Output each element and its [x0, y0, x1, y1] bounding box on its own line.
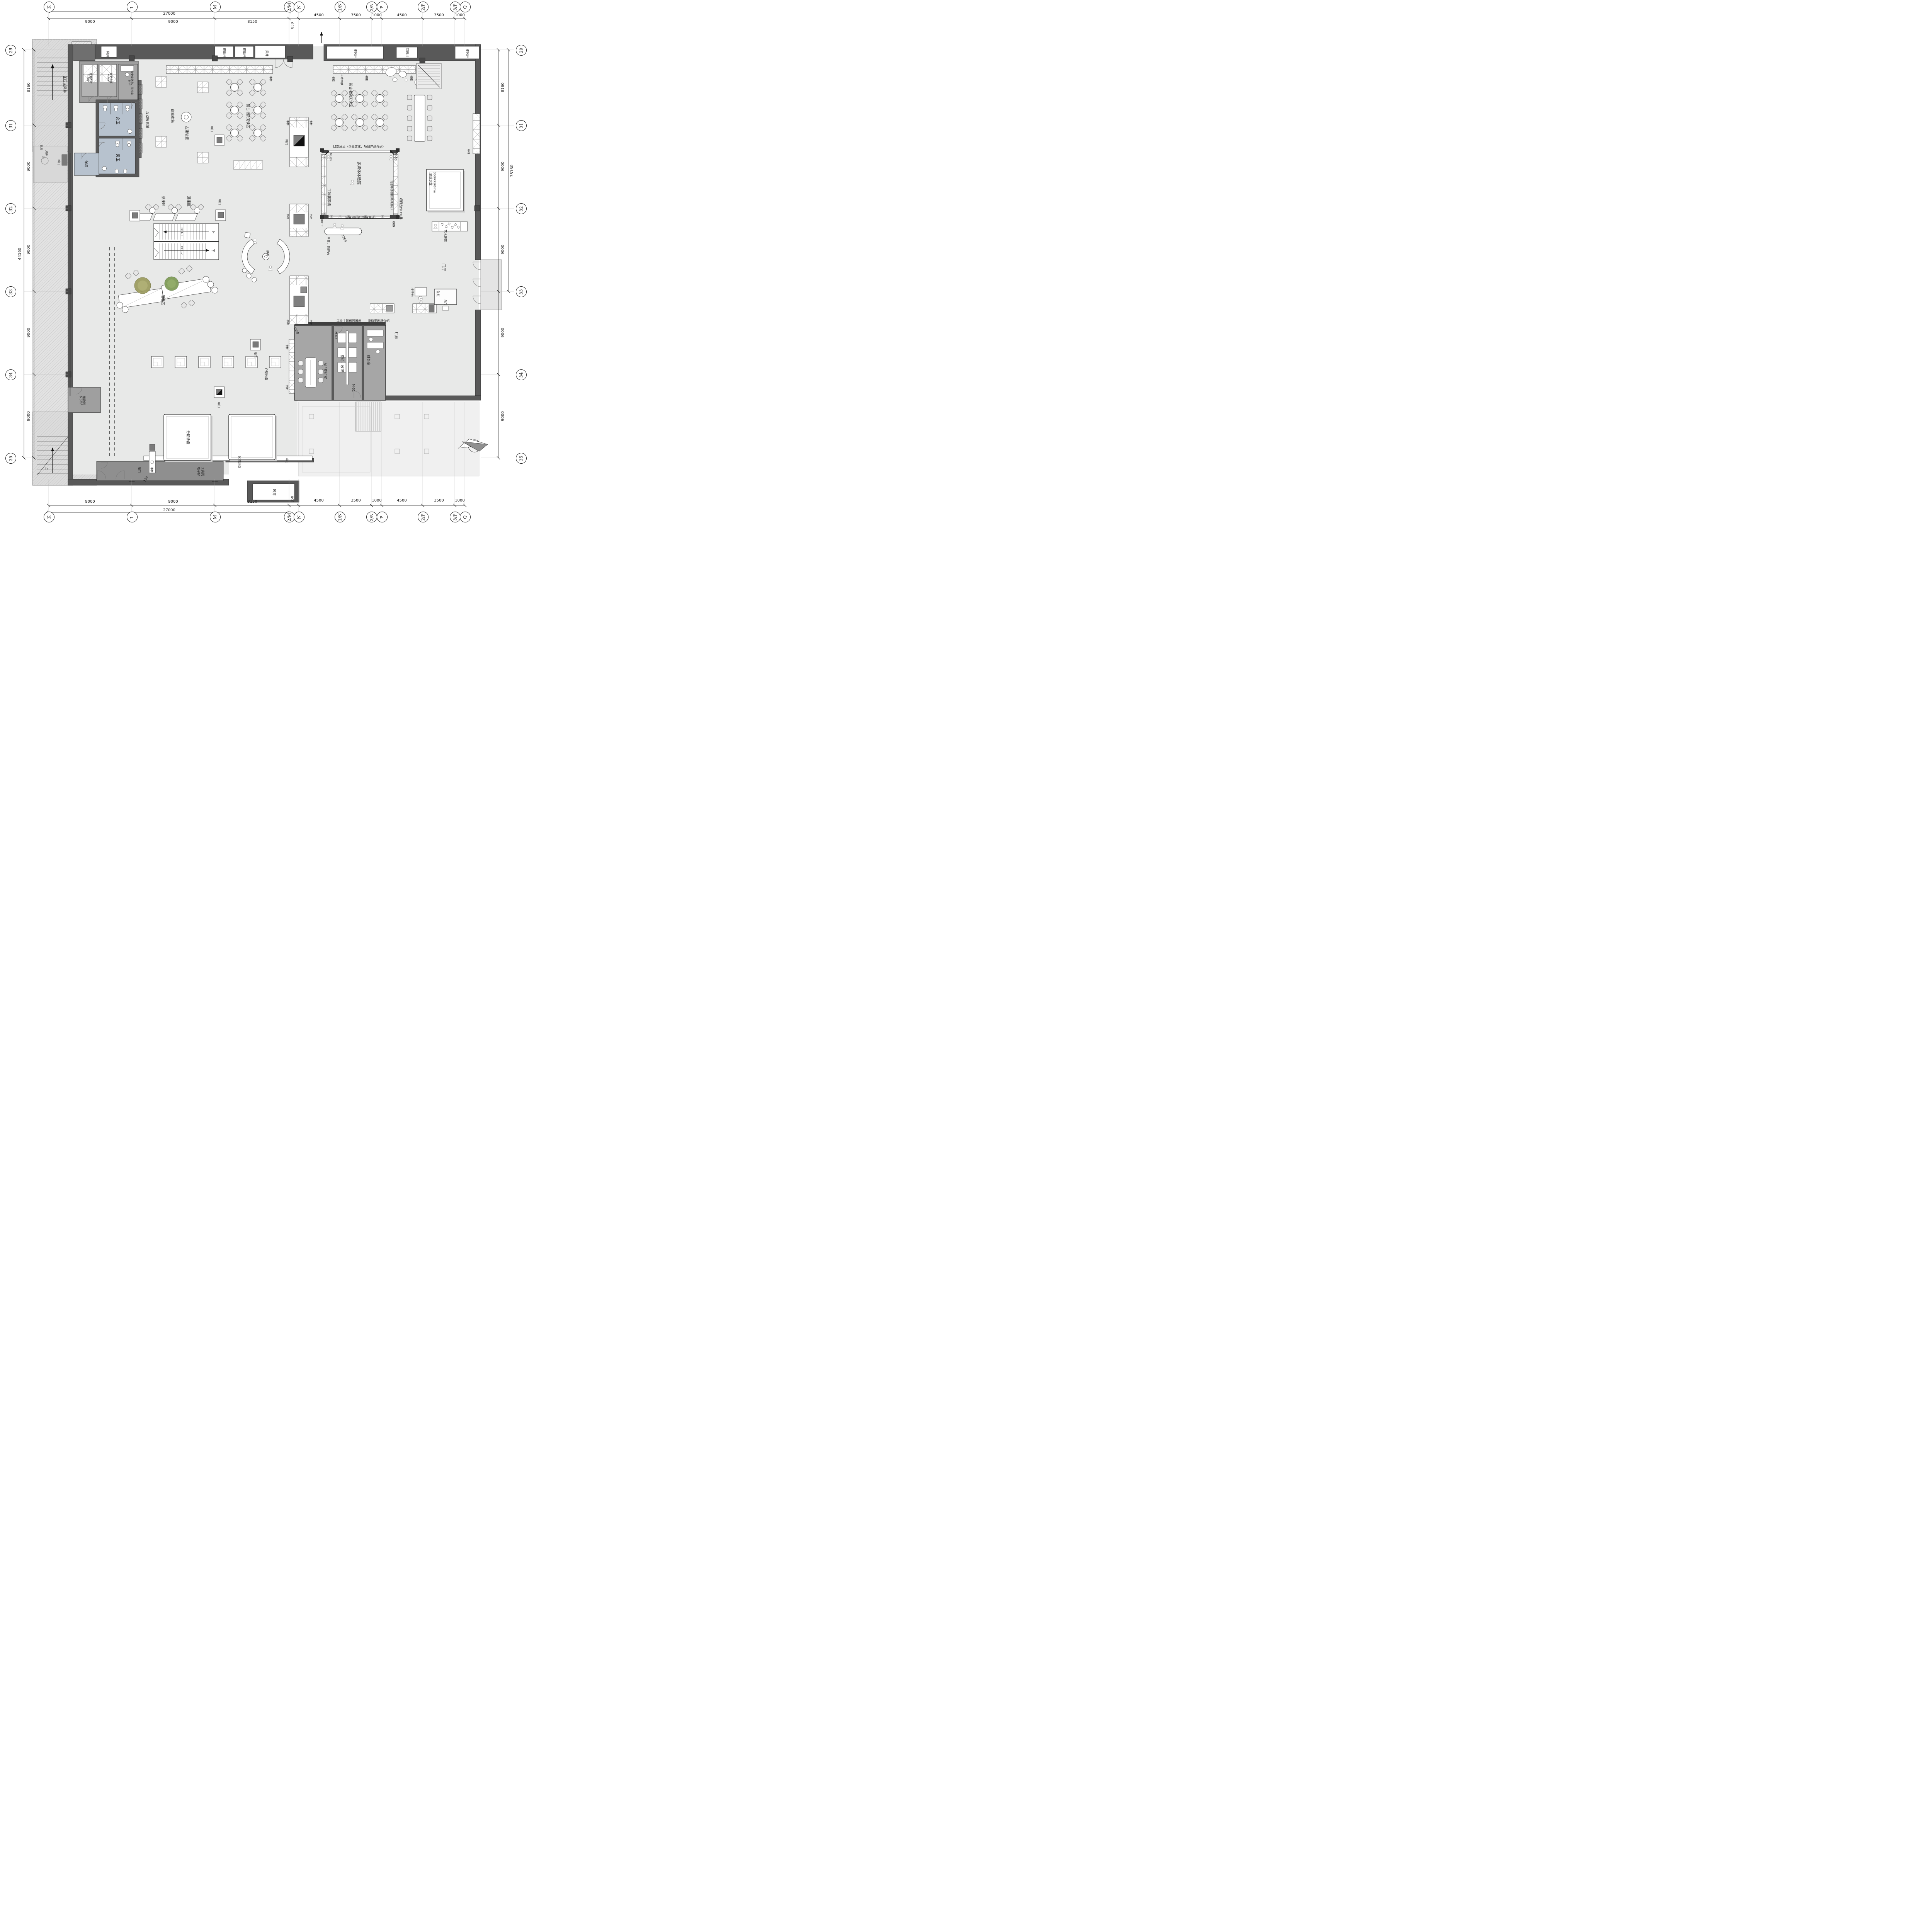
grid-bubble-M-2: M — [210, 2, 221, 12]
grid-bubble-label: 34 — [519, 372, 524, 378]
grid-bubble-label: N — [297, 515, 302, 519]
grid-bubble-3-P-9: 3/P — [450, 2, 461, 12]
grid-bubble-label: 35 — [519, 456, 524, 461]
grid-bubble-label: M — [213, 515, 218, 519]
grid-bubble-2-N-6: 2/N — [366, 2, 377, 12]
grid-bubble-32-30: 32 — [516, 203, 527, 214]
grid-bubble-29-22: 29 — [5, 45, 16, 56]
grid-bubble-N-4: N — [294, 2, 304, 12]
grid-bubble-label: P — [380, 5, 385, 8]
grid-bubble-label: 32 — [519, 206, 524, 211]
grid-bubble-label: 1/N — [338, 3, 343, 11]
grid-bubble-label: 2/M — [287, 513, 292, 521]
grid-bubble-label: 34 — [9, 372, 14, 378]
grid-bubble-label: 2/P — [420, 3, 425, 10]
grid-bubble-label: M — [213, 5, 218, 9]
grid-bubble-label: 2/P — [420, 514, 425, 520]
grid-bubble-P-7: P — [377, 2, 388, 12]
grid-bubble-label: 1/N — [338, 513, 343, 521]
grid-bubble-34-26: 34 — [5, 369, 16, 380]
grid-bubble-label: K — [47, 515, 52, 519]
grid-bubble-label: K — [47, 5, 52, 9]
grid-bubble-L-1: L — [127, 2, 138, 12]
grid-bubble-label: 3/P — [452, 514, 457, 520]
grid-bubble-35-33: 35 — [516, 453, 527, 464]
grid-bubble-label: 29 — [519, 48, 524, 53]
grid-bubble-label: 2/N — [369, 3, 374, 11]
grid-bubble-label: 2/N — [369, 513, 374, 521]
grid-bubble-2-P-19: 2/P — [418, 512, 429, 522]
grid-bubble-label: Q — [463, 515, 468, 519]
grid-bubble-K-11: K — [44, 512, 54, 522]
grid-bubble-1-N-5: 1/N — [335, 2, 345, 12]
grid-bubble-label: 35 — [9, 456, 14, 461]
grid-bubble-35-27: 35 — [5, 453, 16, 464]
grid-bubble-label: 31 — [9, 123, 14, 128]
grid-bubble-label: L — [130, 515, 135, 518]
grid-bubble-N-15: N — [294, 512, 304, 522]
grid-bubble-label: P — [380, 515, 385, 518]
grid-bubble-label: Q — [463, 5, 468, 9]
grid-bubble-label: 33 — [9, 289, 14, 294]
grid-bubble-3-P-20: 3/P — [450, 512, 461, 522]
floor-plan-stage: KLM2/MN1/N2/NP2/P3/PQKLM2/MN1/N2/NP2/P3/… — [0, 0, 531, 522]
grid-bubble-label: 3/P — [452, 3, 457, 10]
grid-bubble-2-N-17: 2/N — [366, 512, 377, 522]
grid-bubble-label: 33 — [519, 289, 524, 294]
grid-bubble-Q-10: Q — [460, 2, 471, 12]
grid-bubble-L-12: L — [127, 512, 138, 522]
grid-bubble-31-23: 31 — [5, 120, 16, 131]
grid-bubble-K-0: K — [44, 2, 54, 12]
grid-bubble-32-24: 32 — [5, 203, 16, 214]
grid-bubble-33-25: 33 — [5, 286, 16, 297]
grid-bubble-label: 31 — [519, 123, 524, 128]
grid-bubble-29-28: 29 — [516, 45, 527, 56]
floor-plan-drawing — [0, 0, 531, 522]
grid-bubble-P-18: P — [377, 512, 388, 522]
grid-bubble-33-31: 33 — [516, 286, 527, 297]
grid-bubble-label: L — [130, 5, 135, 8]
grid-bubble-34-32: 34 — [516, 369, 527, 380]
grid-bubble-2-M-14: 2/M — [284, 512, 295, 522]
grid-bubble-Q-21: Q — [460, 512, 471, 522]
grid-bubble-label: 2/M — [287, 3, 292, 11]
grid-bubble-M-13: M — [210, 512, 221, 522]
grid-bubble-label: N — [297, 5, 302, 9]
grid-bubble-31-29: 31 — [516, 120, 527, 131]
grid-bubble-label: 32 — [9, 206, 14, 211]
grid-bubble-label: 29 — [9, 48, 14, 53]
grid-bubble-2-M-3: 2/M — [284, 2, 295, 12]
grid-bubble-1-N-16: 1/N — [335, 512, 345, 522]
grid-bubble-2-P-8: 2/P — [418, 2, 429, 12]
